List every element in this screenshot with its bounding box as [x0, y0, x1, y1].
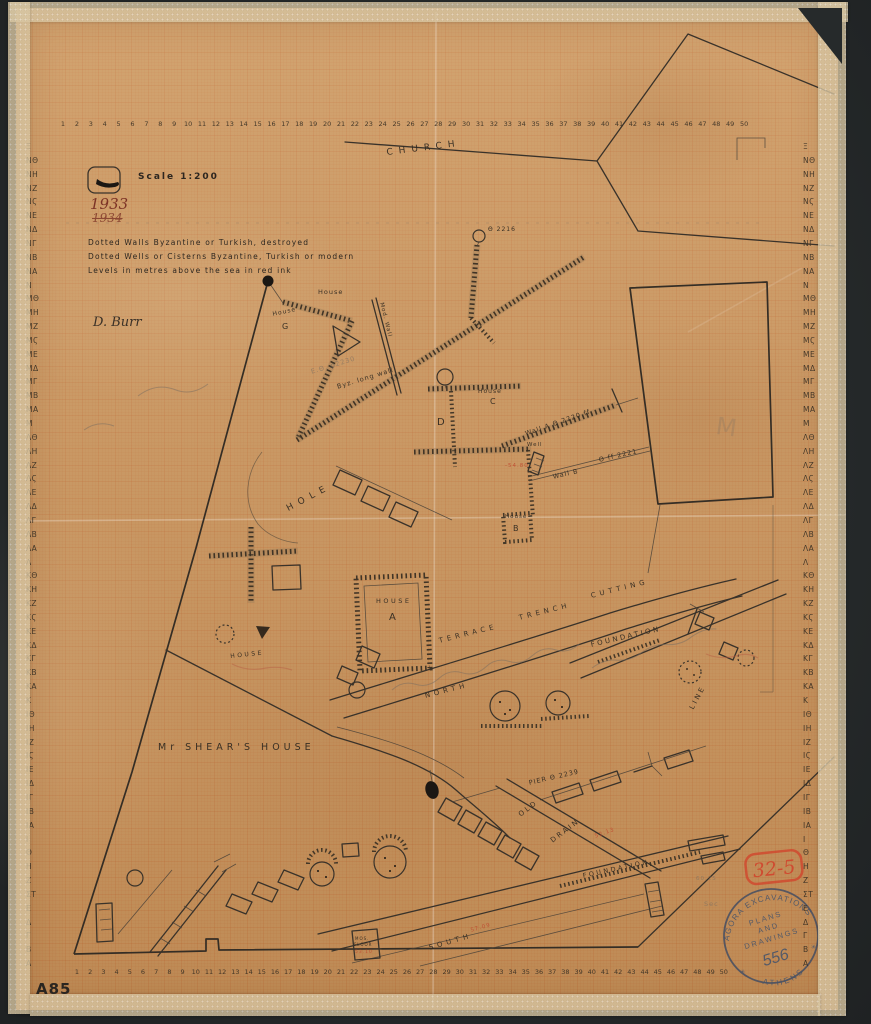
map-label: 53.10 [355, 950, 373, 955]
map-label: Θ ff 2221 [598, 447, 638, 464]
map-label: A [389, 612, 397, 623]
map-label: G [282, 322, 289, 331]
map-label: House [478, 388, 502, 395]
map-label: MOS. [355, 936, 369, 941]
map-label: House [272, 306, 297, 318]
map-label: FOUNDATION [582, 858, 650, 880]
map-label: Mod. Wall [378, 302, 392, 338]
map-label: FLOOR [354, 942, 372, 947]
map-label: HOLE [285, 482, 333, 514]
map-label: CUTTING [590, 578, 649, 600]
tape-left [8, 2, 30, 1014]
map-labels-layer: CHURCHΘ 2216HouseHouseGMod. WallE.Θ. p22… [0, 0, 871, 1024]
map-label: FOUNDATION [590, 625, 661, 649]
map-label: Wall B [552, 467, 579, 481]
map-label: CHURCH [386, 139, 461, 158]
map-label: E.Θ. p2230 [310, 355, 356, 376]
tape-right [818, 2, 846, 1016]
map-label: LINE [688, 684, 707, 710]
map-label: 60.25 [696, 876, 717, 882]
map-label: Θ 2216 [488, 226, 516, 233]
map-label: SOUTH [428, 932, 473, 952]
map-label: Mr SHEAR'S HOUSE [158, 742, 315, 753]
map-label: DRAIN [549, 817, 581, 844]
map-label: House [505, 514, 527, 520]
tape-bottom [30, 994, 820, 1016]
map-label: 57.09 [470, 922, 492, 933]
map-label: Sec [704, 900, 719, 908]
map-label: 52.13 [594, 827, 616, 840]
map-label: C [490, 397, 497, 406]
map-label: PIER Θ 2239 [528, 767, 580, 786]
map-label: NORTH [424, 681, 469, 700]
scanned-plan-sheet: 32-5 AGORA EXCAVATIONS ATHENS PLANS AND … [0, 0, 871, 1024]
map-label: D [437, 417, 446, 428]
map-label: B [513, 524, 520, 533]
map-label: -54.80 [505, 463, 529, 469]
map-label: HOUSE [230, 649, 264, 659]
catalog-number: A85 [36, 980, 71, 998]
map-label: Byz. long wall [336, 366, 395, 391]
map-label: HOUSE [376, 597, 412, 605]
map-label: TRENCH [518, 601, 571, 622]
tape-top [10, 2, 848, 22]
map-label: M [714, 412, 739, 443]
map-label: Wall A Θ 2220 ff [524, 408, 591, 438]
map-label: Well [527, 442, 543, 448]
map-label: House [318, 288, 343, 296]
map-label: TERRACE [438, 622, 498, 644]
map-label: OLD [517, 799, 540, 819]
